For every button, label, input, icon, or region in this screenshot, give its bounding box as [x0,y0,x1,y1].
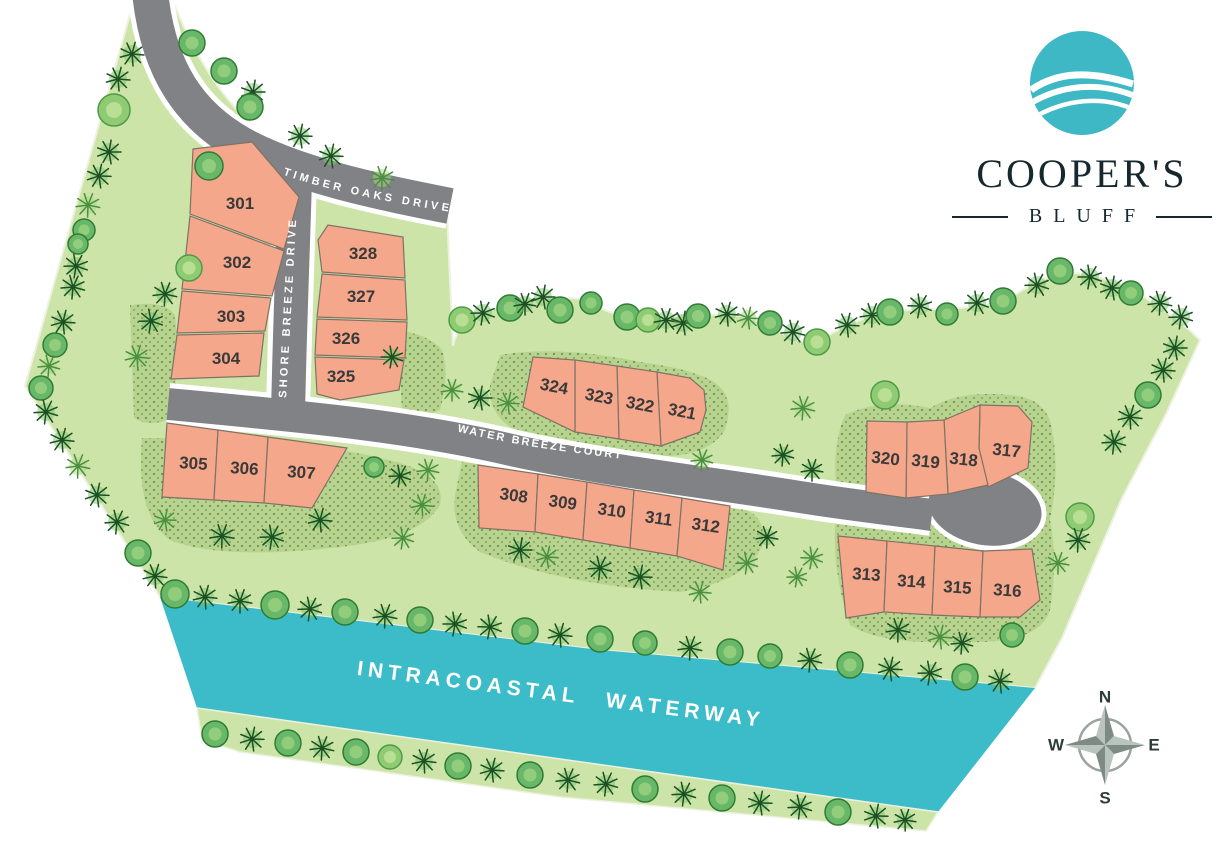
lot-label-316: 316 [993,580,1023,601]
lot-label-309: 309 [547,491,578,514]
tree-icon [871,381,899,409]
lot-label-307: 307 [287,462,317,483]
tree-icon [179,30,205,56]
lot-label-305: 305 [179,453,209,474]
tree-icon [632,776,658,802]
tree-icon [709,785,735,811]
logo-subname: BLUFF [1018,205,1146,228]
lot-label-301: 301 [226,194,254,213]
tree-icon [580,292,602,314]
lot-label-318: 318 [948,449,978,471]
lot-label-314: 314 [897,571,927,592]
lot-label-315: 315 [943,577,973,598]
lot-label-308: 308 [498,484,529,507]
compass-rose: NESW [1048,687,1160,807]
logo-subtitle-row: BLUFF [952,205,1212,228]
tree-icon [547,297,573,323]
tree-icon [29,376,53,400]
lot-label-312: 312 [690,514,721,537]
tree-icon [378,745,402,769]
compass-s: S [1099,788,1110,807]
tree-icon [1047,258,1073,284]
tree-icon [1148,292,1172,315]
tree-icon [195,152,223,180]
tree-icon [202,721,228,747]
lot-label-311: 311 [644,507,674,530]
tree-icon [717,639,743,665]
tree-icon [1169,305,1192,329]
tree-icon [43,333,67,357]
tree-icon [275,730,301,756]
tree-icon [877,299,903,325]
tree-icon [512,618,538,644]
compass-w: W [1048,735,1065,754]
tree-icon [125,540,151,566]
tree-icon [445,753,471,779]
tree-icon [804,329,830,355]
tree-icon [237,94,263,120]
tree-icon [1066,503,1094,531]
tree-icon [633,631,657,655]
tree-icon [758,311,782,335]
tree-icon [936,303,958,325]
tree-icon [825,799,851,825]
tree-icon [1000,623,1024,647]
lot-label-310: 310 [596,499,627,522]
lot-label-306: 306 [230,458,260,479]
tree-icon [990,288,1016,314]
tree-icon [587,626,613,652]
coopers-bluff-logo: COOPER'S BLUFF [952,30,1212,228]
lot-label-328: 328 [349,244,377,263]
tree-icon [407,607,433,633]
tree-icon [211,58,237,84]
tree-icon [1135,382,1161,408]
tree-icon [636,308,660,332]
tree-icon [261,591,289,619]
lot-label-325: 325 [327,367,355,386]
compass-e: E [1148,735,1159,754]
lot-label-327: 327 [347,287,375,306]
logo-wave-icon [1029,30,1135,136]
tree-icon [98,94,130,126]
tree-icon [837,652,863,678]
lot-label-313: 313 [852,564,882,585]
lot-label-303: 303 [217,307,245,326]
tree-icon [517,762,543,788]
tree-icon [1119,281,1143,305]
compass-n: N [1099,687,1111,706]
tree-icon [449,307,475,333]
lot-label-326: 326 [332,329,360,348]
tree-icon [758,644,782,668]
tree-icon [364,457,384,477]
tree-icon [176,255,202,281]
logo-name: COOPER'S [952,150,1212,197]
tree-icon [161,580,189,608]
tree-icon [332,599,358,625]
tree-icon [68,234,88,254]
logo-rule-right [1156,216,1212,218]
tree-icon [952,664,978,690]
lot-label-304: 304 [212,349,241,368]
tree-icon [686,304,710,328]
tree-icon [343,739,369,765]
lot-label-319: 319 [910,451,940,473]
lot-label-317: 317 [991,440,1021,462]
lot-label-302: 302 [223,253,251,272]
lot-label-320: 320 [870,448,900,470]
logo-rule-left [952,216,1008,218]
